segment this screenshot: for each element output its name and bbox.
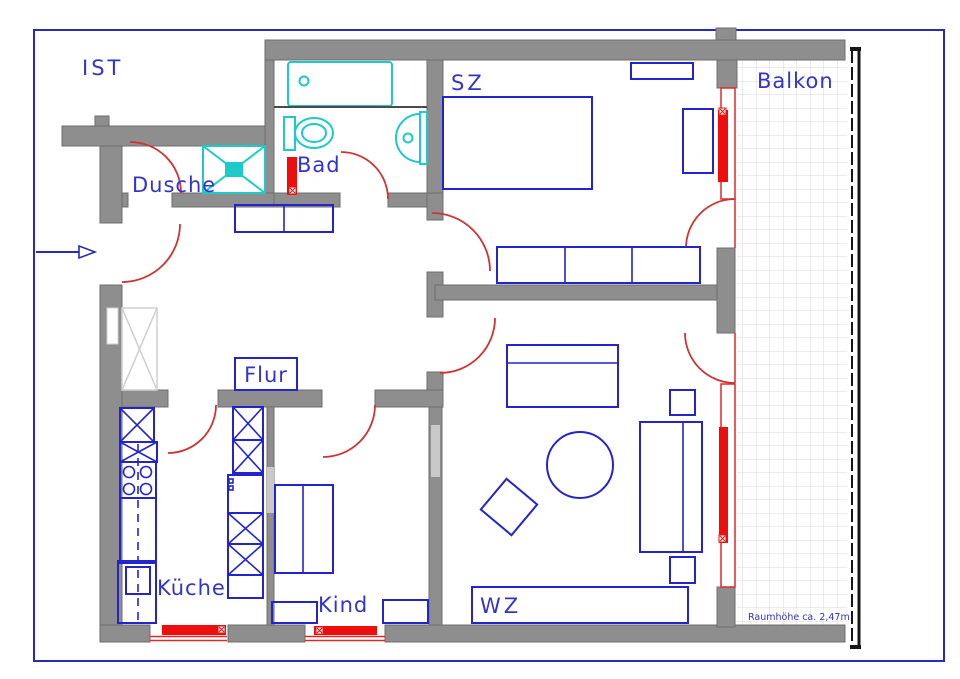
round-table-wz xyxy=(547,432,613,498)
wall-center-a xyxy=(427,60,443,193)
wall-right-mid xyxy=(717,248,735,333)
wall-bottom-a xyxy=(100,625,150,642)
cabinet-kueche-4-cross xyxy=(233,440,263,473)
wall-bottom-b xyxy=(228,625,305,642)
radiator-kueche xyxy=(162,625,226,635)
door-arc-wz xyxy=(440,318,495,373)
room-label-flur: Flur xyxy=(244,363,288,387)
wall-right-top xyxy=(717,60,737,88)
valve-icon-kind xyxy=(316,627,323,634)
wall-stub-top-right xyxy=(716,28,736,40)
wall-sz-wz xyxy=(435,285,717,300)
wardrobe-hall-cross xyxy=(122,308,157,390)
entrance-arrow-head xyxy=(79,246,95,258)
door-arc-bad xyxy=(341,152,388,199)
wall-dusche-bad xyxy=(265,60,274,193)
bed-kind xyxy=(275,485,333,573)
wall-bottom-c xyxy=(385,625,845,642)
door-leaf-kueche-kind xyxy=(267,467,274,513)
toilet-tank xyxy=(284,117,295,150)
fridge-hinge-1 xyxy=(229,479,233,483)
cabinet-kueche-5-cross xyxy=(228,513,263,544)
shower-drain xyxy=(225,162,243,177)
wall-flur-b xyxy=(218,390,322,407)
cabinet-kueche-3-cross xyxy=(233,407,263,440)
wall-stub-top-left xyxy=(95,116,109,126)
valve-icon-sz xyxy=(719,108,726,115)
furniture-wz xyxy=(472,345,702,623)
sink-basin xyxy=(396,114,420,162)
bed-sz xyxy=(443,97,592,189)
wall-top-left xyxy=(62,126,273,146)
sink-drain xyxy=(404,134,413,143)
bathtub xyxy=(288,62,392,106)
valve-icon-bad xyxy=(289,187,296,194)
furniture-sz xyxy=(443,63,713,283)
door-arc-sz xyxy=(432,213,490,271)
door-arc-wz-balcony xyxy=(685,333,735,383)
bathtub-drain xyxy=(300,77,309,86)
railing-bottom-cap xyxy=(850,645,861,649)
floor-plan: IST Dusche Bad SZ Balkon Flur Küche Kind… xyxy=(0,0,960,679)
couch-wz xyxy=(640,422,702,552)
entrance-arrow-icon xyxy=(36,246,95,258)
nightstand-kind-right xyxy=(383,600,428,623)
door-arc-kueche xyxy=(168,405,216,453)
toilet-bowl-inner xyxy=(302,124,326,142)
burner-3 xyxy=(124,484,135,495)
room-label-kind: Kind xyxy=(318,593,368,617)
radiator-sz xyxy=(718,110,728,182)
wall-left-upper xyxy=(100,146,122,223)
room-label-bad: Bad xyxy=(297,153,341,177)
burner-1 xyxy=(124,467,135,478)
room-label-kueche: Küche xyxy=(157,576,226,600)
door-arc-entrance xyxy=(122,224,180,282)
wardrobe-sz xyxy=(497,247,700,283)
small-table-top-wz xyxy=(670,390,695,415)
floor-plan-svg: IST Dusche Bad SZ Balkon Flur Küche Kind… xyxy=(0,0,960,679)
burner-2 xyxy=(141,467,152,478)
balcony-railing xyxy=(850,47,861,649)
wall-flur-c xyxy=(375,390,443,407)
room-label-sz: SZ xyxy=(451,71,485,95)
toilet-bowl xyxy=(295,118,333,148)
room-label-wz: WZ xyxy=(480,594,521,618)
sofa-wz xyxy=(507,345,618,407)
wall-flur-a xyxy=(122,390,168,407)
radiator-wz xyxy=(719,427,728,543)
dresser-sz xyxy=(683,109,713,173)
small-table-bottom-wz xyxy=(670,557,695,583)
valve-icon-kueche xyxy=(218,626,225,633)
room-label-dusche: Dusche xyxy=(132,173,216,197)
room-label-balkon: Balkon xyxy=(757,69,834,93)
fridge-hinge-2 xyxy=(229,486,233,490)
wall-kueche-kind xyxy=(267,407,274,625)
door-leaf-kind-wz xyxy=(431,425,440,477)
room-label-ist: IST xyxy=(82,56,123,80)
furniture-flur xyxy=(122,205,333,390)
wall-center-b xyxy=(427,193,443,220)
valve-icon-wz xyxy=(719,535,726,542)
room-height-annotation: Raumhöhe ca. 2,47m xyxy=(748,612,850,623)
balcony-floor xyxy=(737,60,847,627)
door-arc-sz-balcony xyxy=(686,199,735,248)
shelf-sz xyxy=(631,63,693,79)
side-table-diamond-wz xyxy=(481,479,537,535)
balcony-tile-grid xyxy=(737,60,847,627)
sink-base xyxy=(420,112,427,164)
cabinet-kueche-1-cross xyxy=(120,408,154,442)
door-arc-kind xyxy=(323,405,375,457)
wall-top xyxy=(265,40,845,60)
wall-dusche-stub xyxy=(122,193,128,207)
nightstand-kind-left xyxy=(272,602,317,623)
cabinet-kueche-7 xyxy=(228,575,263,598)
cabinet-kueche-6-cross xyxy=(228,544,263,575)
railing-top-cap xyxy=(850,47,861,51)
burner-4 xyxy=(141,484,152,495)
wall-right-bottom xyxy=(717,587,735,627)
wall-niche xyxy=(107,308,118,344)
